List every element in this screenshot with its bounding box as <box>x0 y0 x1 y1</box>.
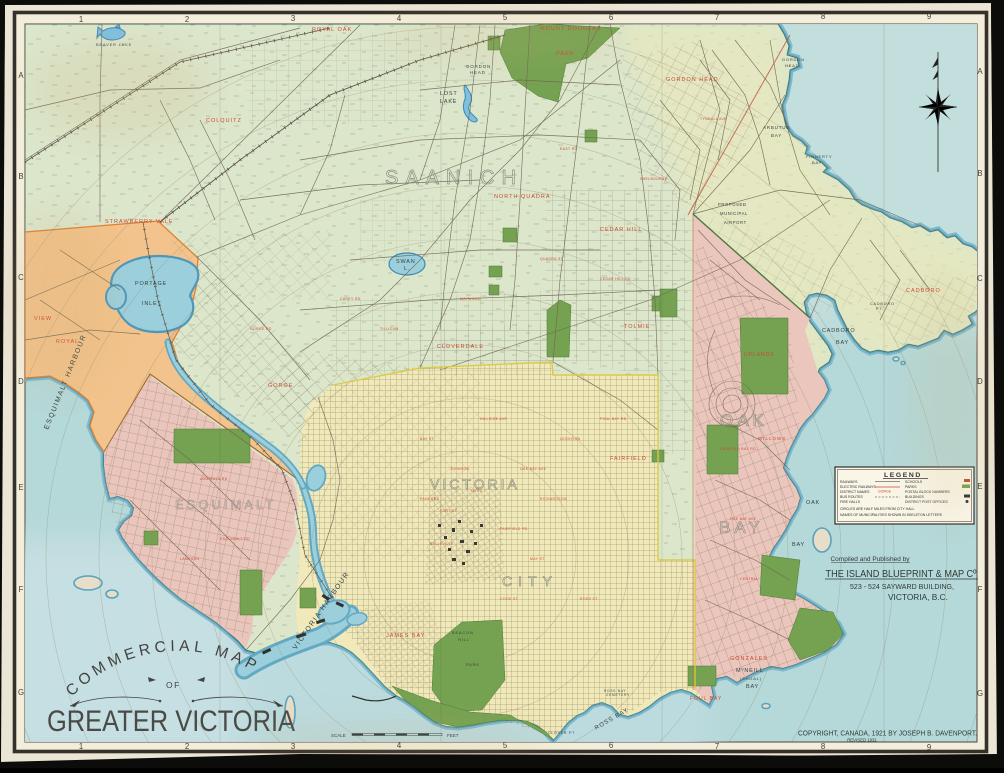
svg-text:ADMIRALS RD: ADMIRALS RD <box>200 477 228 481</box>
svg-text:G: G <box>18 688 24 697</box>
svg-text:F: F <box>19 585 24 594</box>
svg-text:CEDAR HILL RD: CEDAR HILL RD <box>600 277 631 281</box>
svg-text:GORGE: GORGE <box>268 383 293 389</box>
svg-text:OAK: OAK <box>806 500 820 506</box>
svg-text:CLOVER PT: CLOVER PT <box>548 731 575 735</box>
svg-text:JOHNSON: JOHNSON <box>450 467 470 471</box>
svg-text:ROYAL OAK: ROYAL OAK <box>312 27 352 33</box>
svg-text:1: 1 <box>79 15 83 24</box>
svg-text:BAY: BAY <box>812 160 822 165</box>
svg-text:ESQUIMALT RD: ESQUIMALT RD <box>220 537 250 541</box>
svg-text:E: E <box>18 483 23 492</box>
svg-text:6: 6 <box>609 741 613 750</box>
svg-text:4: 4 <box>397 14 402 23</box>
svg-text:WILLOWS: WILLOWS <box>758 436 786 441</box>
svg-text:OAK BAY AVE: OAK BAY AVE <box>520 467 547 471</box>
svg-text:CADBORO: CADBORO <box>822 328 855 334</box>
svg-text:CITY: CITY <box>502 573 558 589</box>
svg-text:MAY ST: MAY ST <box>530 557 545 561</box>
svg-text:D: D <box>18 377 24 386</box>
svg-text:E: E <box>977 482 982 491</box>
svg-text:3: 3 <box>291 742 295 751</box>
svg-text:GONZALES: GONZALES <box>730 656 768 662</box>
svg-text:BEACON: BEACON <box>452 630 474 635</box>
svg-text:HILLSIDE AVE: HILLSIDE AVE <box>480 417 508 421</box>
svg-text:6: 6 <box>609 13 613 22</box>
svg-text:BAY ST: BAY ST <box>420 437 434 441</box>
svg-text:LAKE: LAKE <box>440 99 457 105</box>
svg-text:BUILDINGS: BUILDINGS <box>905 495 925 499</box>
svg-text:PORTAGE: PORTAGE <box>135 281 167 287</box>
svg-text:MAYWOOD: MAYWOOD <box>460 297 481 301</box>
svg-text:COOK ST: COOK ST <box>500 597 518 601</box>
svg-text:L.: L. <box>404 266 410 272</box>
svg-text:C: C <box>18 273 24 282</box>
svg-text:BAY: BAY <box>836 340 849 346</box>
svg-text:FAIRFIELD RD: FAIRFIELD RD <box>500 527 528 531</box>
svg-text:LEGEND: LEGEND <box>884 472 922 479</box>
svg-text:PARKS: PARKS <box>905 485 917 489</box>
svg-text:523 - 524 SAYWARD BUILDING,: 523 - 524 SAYWARD BUILDING, <box>850 582 954 591</box>
svg-text:LAMPSON: LAMPSON <box>180 557 200 561</box>
svg-text:LOST: LOST <box>440 91 458 97</box>
svg-text:8: 8 <box>821 12 825 21</box>
svg-text:CLOVERDALE: CLOVERDALE <box>437 344 484 350</box>
svg-text:PARK: PARK <box>466 662 480 667</box>
svg-text:JAMES BAY: JAMES BAY <box>386 633 425 639</box>
svg-text:RICHARDSON: RICHARDSON <box>540 497 567 501</box>
svg-text:HILL: HILL <box>458 637 470 642</box>
svg-text:GREATER VICTORIA: GREATER VICTORIA <box>47 705 295 738</box>
svg-text:3: 3 <box>291 14 295 23</box>
svg-text:VICTORIA: VICTORIA <box>430 476 520 492</box>
svg-text:9: 9 <box>927 12 931 21</box>
svg-text:GORGE: GORGE <box>878 490 892 494</box>
svg-text:FOUL BAY RD: FOUL BAY RD <box>600 417 627 421</box>
svg-text:PT.: PT. <box>876 307 884 311</box>
svg-text:B: B <box>18 172 23 181</box>
svg-text:ARBUTUS: ARBUTUS <box>763 125 790 130</box>
svg-text:FIRE HALLS: FIRE HALLS <box>840 500 861 504</box>
svg-text:UPLANDS: UPLANDS <box>744 352 775 358</box>
svg-text:2: 2 <box>185 742 189 751</box>
svg-text:9: 9 <box>927 743 931 752</box>
svg-text:(SHOAL): (SHOAL) <box>740 676 762 681</box>
svg-text:2: 2 <box>185 15 189 24</box>
svg-text:HEAD: HEAD <box>470 70 486 75</box>
svg-text:GORDON HEAD: GORDON HEAD <box>666 77 719 83</box>
svg-text:CADBORO: CADBORO <box>870 302 895 306</box>
svg-text:CEMETERY: CEMETERY <box>606 693 630 697</box>
svg-text:TOLMIE: TOLMIE <box>624 324 650 330</box>
svg-text:G: G <box>977 689 983 698</box>
svg-text:NAMES OF MUNICIPALITIES SHOWN: NAMES OF MUNICIPALITIES SHOWN IN SKELETO… <box>840 513 943 517</box>
svg-text:A: A <box>977 67 983 76</box>
svg-text:ESQUIMALT: ESQUIMALT <box>175 497 276 512</box>
svg-text:STRAWBERRY VALE: STRAWBERRY VALE <box>105 219 174 225</box>
svg-text:M⁰NEILL: M⁰NEILL <box>736 667 764 674</box>
svg-text:ROSS ST: ROSS ST <box>580 597 598 601</box>
svg-text:B: B <box>977 169 982 178</box>
svg-text:DISTRICT NAMES: DISTRICT NAMES <box>840 490 870 494</box>
svg-text:RAILWAYS: RAILWAYS <box>840 480 858 484</box>
svg-text:ELECTRIC RAILWAYS: ELECTRIC RAILWAYS <box>840 485 876 489</box>
svg-text:QUADRA ST: QUADRA ST <box>540 257 563 261</box>
svg-text:5: 5 <box>503 13 508 22</box>
svg-text:7: 7 <box>715 742 719 751</box>
svg-text:BAY: BAY <box>719 518 764 537</box>
svg-text:INLET: INLET <box>142 301 162 307</box>
svg-text:LEIGHTON: LEIGHTON <box>560 437 581 441</box>
svg-text:Compiled and Published by: Compiled and Published by <box>831 556 911 563</box>
svg-text:SCHOOLS: SCHOOLS <box>905 480 923 484</box>
svg-text:SWAN: SWAN <box>396 259 416 265</box>
svg-text:SHELBOURNE: SHELBOURNE <box>640 177 668 181</box>
svg-text:EAST RD: EAST RD <box>560 147 578 151</box>
svg-text:BAY: BAY <box>792 542 805 548</box>
svg-text:CADBORO BAY RD: CADBORO BAY RD <box>720 447 756 451</box>
svg-text:THE ISLAND BLUEPRINT & MAP Cº: THE ISLAND BLUEPRINT & MAP Cº <box>826 568 977 580</box>
svg-text:COPYRIGHT, CANADA, 1921 BY JOS: COPYRIGHT, CANADA, 1921 BY JOSEPH B. DAV… <box>798 729 977 738</box>
svg-text:OF: OF <box>166 680 181 690</box>
svg-text:CIRCLES ARE HALF MILES FROM CI: CIRCLES ARE HALF MILES FROM CITY HALL <box>840 507 914 511</box>
svg-text:BELLEVILLE: BELLEVILLE <box>430 542 454 546</box>
svg-text:OAK: OAK <box>720 411 768 430</box>
svg-text:AIRPORT: AIRPORT <box>724 220 747 225</box>
svg-text:BAY: BAY <box>771 133 782 138</box>
svg-text:5: 5 <box>503 741 508 750</box>
svg-text:CAREY RD: CAREY RD <box>340 297 361 301</box>
svg-text:D: D <box>977 377 983 386</box>
svg-text:F: F <box>978 585 983 594</box>
svg-text:FOUL BAY: FOUL BAY <box>690 696 722 702</box>
svg-text:FAIRFIELD: FAIRFIELD <box>610 456 647 462</box>
svg-text:GORGE RD: GORGE RD <box>250 327 272 331</box>
svg-text:VICTORIA, B.C.: VICTORIA, B.C. <box>888 592 948 602</box>
svg-text:REVISED 1931: REVISED 1931 <box>847 738 877 743</box>
svg-text:GORDON: GORDON <box>782 57 805 62</box>
svg-text:CENTRAL: CENTRAL <box>740 577 759 581</box>
svg-text:4: 4 <box>397 741 402 750</box>
svg-text:BAY: BAY <box>746 684 759 690</box>
svg-text:COLQUITZ: COLQUITZ <box>206 118 242 124</box>
svg-text:TYNDALL AVE: TYNDALL AVE <box>700 117 727 121</box>
svg-text:FINNERTY: FINNERTY <box>806 154 832 159</box>
svg-text:HEAD: HEAD <box>785 63 799 68</box>
svg-text:BUS ROUTES: BUS ROUTES <box>840 495 863 499</box>
svg-text:8: 8 <box>821 742 825 751</box>
svg-text:MUNICIPAL: MUNICIPAL <box>720 211 748 216</box>
svg-text:7: 7 <box>715 13 719 22</box>
svg-text:1: 1 <box>79 742 83 751</box>
svg-text:A: A <box>18 71 24 80</box>
svg-text:SAANICH: SAANICH <box>385 167 523 189</box>
svg-text:FORT ST: FORT ST <box>440 509 457 513</box>
svg-text:PANDORA: PANDORA <box>420 497 440 501</box>
svg-text:TILLICUM: TILLICUM <box>380 327 399 331</box>
svg-text:PROPOSED: PROPOSED <box>718 202 747 207</box>
svg-text:CEDAR HILL: CEDAR HILL <box>600 227 642 233</box>
svg-text:NORTH QUADRA: NORTH QUADRA <box>494 194 551 200</box>
svg-text:C: C <box>977 274 983 283</box>
